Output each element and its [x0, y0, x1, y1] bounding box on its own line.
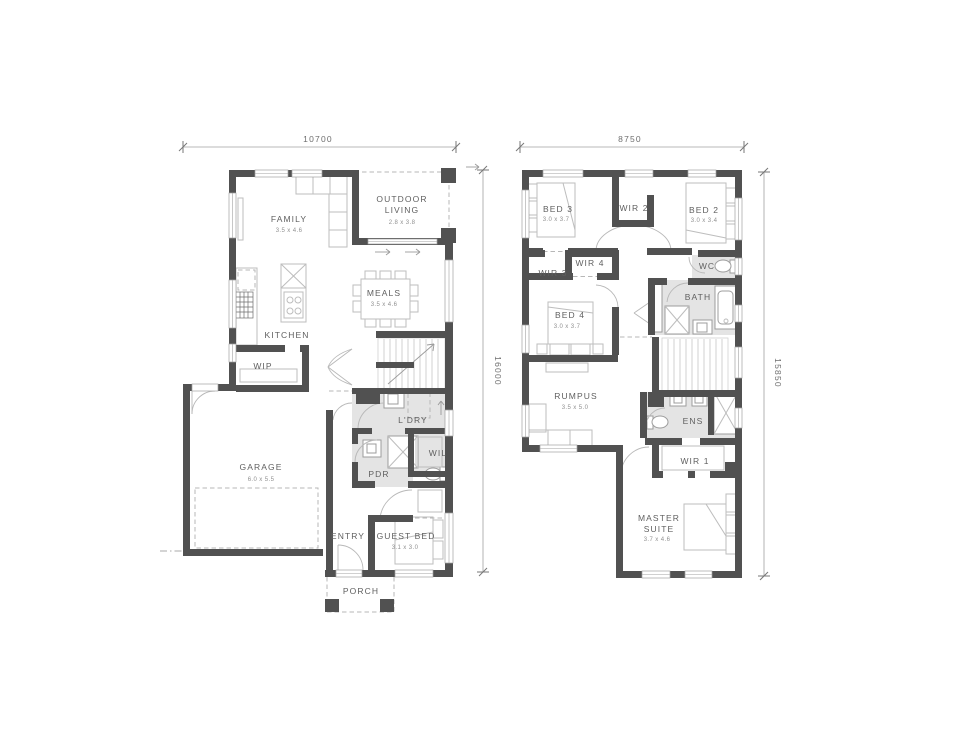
room-label-bed3: BED 3	[543, 204, 573, 214]
window	[445, 410, 453, 436]
room-size-outdoor-living: 2.8 x 3.8	[389, 220, 416, 226]
window	[522, 405, 529, 437]
pillow	[571, 344, 590, 355]
room-label-wc: WC	[699, 261, 715, 271]
chair	[353, 285, 361, 296]
room-size-bed4: 3.0 x 3.7	[554, 324, 581, 330]
bedside-table	[537, 344, 547, 354]
room-label-entry: ENTRY	[331, 531, 365, 541]
room-label-master-1: MASTER	[638, 513, 680, 523]
porch-post	[325, 599, 339, 612]
ground-dimensions: 10700 16000	[179, 134, 503, 576]
room-size-master: 3.7 x 4.6	[644, 537, 671, 543]
ens-shower	[714, 392, 738, 434]
chair	[395, 319, 406, 327]
chair	[353, 301, 361, 312]
room-size-meals: 3.5 x 4.6	[371, 302, 398, 308]
window	[735, 305, 742, 322]
oven-tower	[236, 292, 253, 318]
window	[445, 513, 453, 563]
room-label-meals: MEALS	[367, 288, 401, 298]
chair	[380, 319, 391, 327]
rumpus-tv-unit	[546, 363, 588, 372]
room-label-ens: ENS	[683, 416, 704, 426]
chair	[380, 271, 391, 279]
room-label-bed2: BED 2	[689, 205, 719, 215]
garage-side-door	[192, 391, 215, 414]
room-label-outdoor-living-2: LIVING	[385, 205, 419, 215]
room-label-wil: WIL	[429, 448, 447, 458]
laundry-cupboard	[356, 394, 380, 404]
room-size-garage: 6.0 x 5.5	[248, 477, 275, 483]
room-label-pdr: PDR	[368, 469, 389, 479]
room-size-rumpus: 3.5 x 5.0	[562, 405, 589, 411]
room-label-wir2: WIR 2	[619, 203, 648, 213]
upper-height-dimension: 15850	[773, 358, 783, 388]
window	[336, 570, 362, 577]
ground-floor-plan: FAMILY 3.5 x 4.6 OUTDOOR LIVING 2.8 x 3.…	[160, 134, 503, 612]
window	[625, 170, 653, 177]
porch-post	[380, 599, 394, 612]
entry-door	[338, 545, 363, 570]
room-label-garage: GARAGE	[240, 462, 283, 472]
ground-height-dimension: 16000	[493, 356, 503, 386]
pillow	[433, 541, 443, 559]
room-label-wir1: WIR 1	[680, 456, 709, 466]
room-label-wir4: WIR 4	[575, 258, 604, 268]
ground-width-dimension: 10700	[303, 134, 333, 144]
room-label-bed4: BED 4	[555, 310, 585, 320]
misc-arrow	[466, 164, 479, 170]
guest-bed-door	[380, 490, 412, 518]
bathtub	[715, 286, 736, 329]
upper-width-dimension: 8750	[618, 134, 642, 144]
chair	[410, 285, 418, 296]
window	[229, 344, 236, 362]
window	[292, 170, 322, 177]
bath-vanity	[693, 320, 712, 334]
window	[229, 280, 236, 328]
room-label-wip: WIP	[253, 361, 272, 371]
window	[229, 193, 236, 238]
window	[735, 347, 742, 378]
room-label-master-2: SUITE	[644, 524, 675, 534]
family-sofa	[296, 176, 347, 247]
tv-unit	[238, 198, 243, 240]
fridge-space	[238, 270, 255, 290]
window	[540, 445, 577, 452]
chair	[395, 271, 406, 279]
cooktop	[284, 292, 303, 318]
garage-internal-door	[333, 403, 352, 420]
wc-toilet	[715, 260, 736, 273]
window	[395, 570, 433, 577]
pillow	[550, 344, 569, 355]
room-size-bed3: 3.0 x 3.7	[543, 217, 570, 223]
outdoor-post	[441, 168, 456, 183]
window	[522, 325, 529, 353]
garage-door	[195, 488, 318, 548]
room-label-guest-bed: GUEST BED	[377, 531, 436, 541]
guest-robe-shelf	[418, 490, 442, 512]
bath-shower	[665, 306, 689, 334]
upper-staircase	[620, 337, 728, 391]
window	[735, 198, 742, 240]
kitchen-island	[281, 264, 306, 322]
floor-plan-canvas: FAMILY 3.5 x 4.6 OUTDOOR LIVING 2.8 x 3.…	[0, 0, 960, 753]
linen-doors	[634, 302, 650, 324]
upper-floor-plan: BED 3 3.0 x 3.7 WIR 2 BED 2 3.0 x 3.4 WI…	[516, 134, 783, 580]
bedside-table	[593, 344, 603, 354]
ens-toilet	[647, 416, 668, 429]
sliding-door	[368, 239, 437, 244]
chair	[410, 301, 418, 312]
room-size-bed2: 3.0 x 3.4	[691, 218, 718, 224]
room-size-family: 3.5 x 4.6	[276, 228, 303, 234]
hall-double-doors	[328, 349, 352, 385]
window	[543, 170, 583, 177]
window	[688, 170, 716, 177]
master-bed	[684, 494, 738, 554]
dining-table	[353, 271, 418, 327]
room-label-laundry: L'DRY	[398, 415, 428, 425]
room-label-bath: BATH	[685, 292, 711, 302]
hall-arch-arcs	[596, 225, 671, 251]
window	[255, 170, 288, 177]
sliding-door-arrows	[375, 249, 420, 255]
window	[445, 260, 453, 322]
chair	[365, 271, 376, 279]
window	[642, 571, 670, 578]
window	[522, 190, 529, 238]
outdoor-post	[441, 228, 456, 243]
garage-side-door-opening	[192, 384, 218, 391]
window	[735, 408, 742, 428]
room-label-wir3: WIR 3	[538, 268, 567, 278]
master-door	[621, 447, 649, 475]
room-label-outdoor-living-1: OUTDOOR	[376, 194, 427, 204]
chair	[365, 319, 376, 327]
window	[685, 571, 712, 578]
bed4-door	[596, 285, 618, 307]
room-label-family: FAMILY	[271, 214, 307, 224]
room-size-guest-bed: 3.1 x 3.0	[392, 545, 419, 551]
window	[735, 258, 742, 275]
room-label-kitchen: KITCHEN	[264, 330, 309, 340]
room-label-rumpus: RUMPUS	[554, 391, 597, 401]
room-label-porch: PORCH	[343, 586, 379, 596]
